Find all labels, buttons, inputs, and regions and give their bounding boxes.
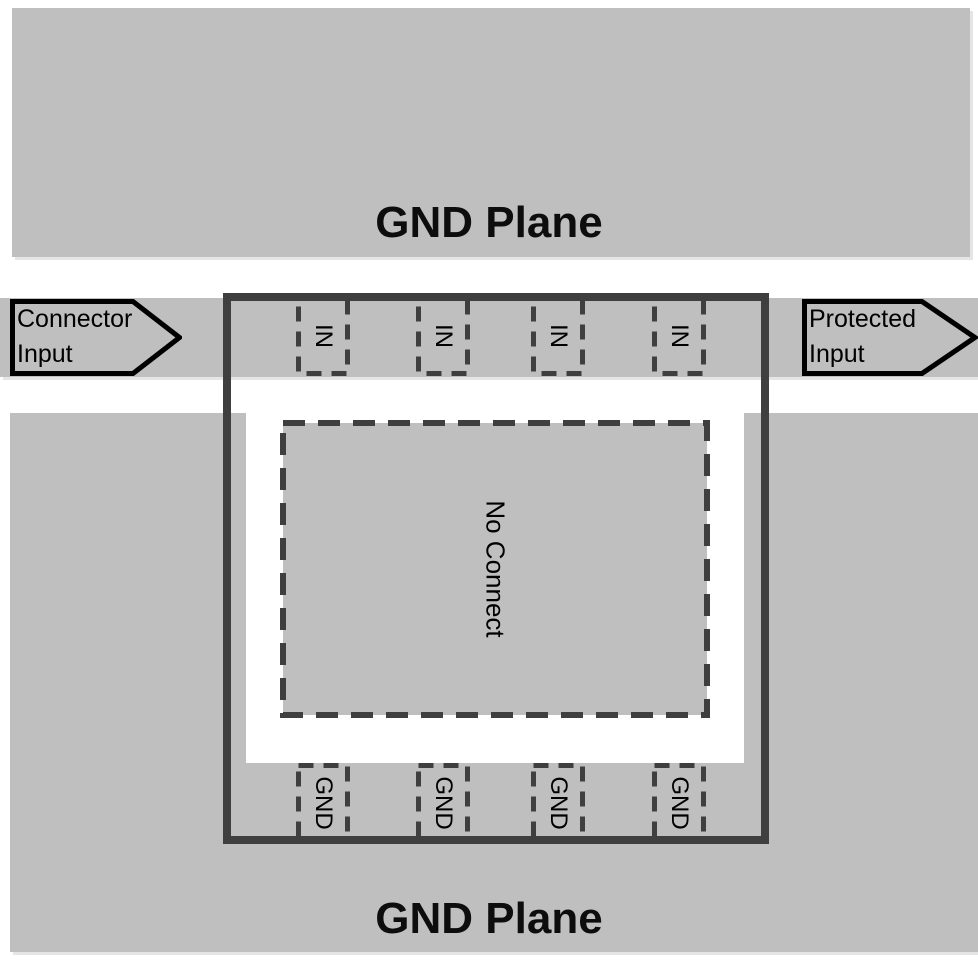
chip-footprint-outline (223, 293, 769, 844)
connector-input-label-line1: Connector (17, 302, 132, 337)
pcb-layout-diagram: GND Plane GND Plane No Connect IN IN IN … (0, 0, 978, 976)
protected-input-label-line2: Input (809, 337, 916, 372)
gnd-plane-top-label: GND Plane (0, 198, 978, 248)
connector-input-arrow: Connector Input (10, 299, 182, 376)
connector-input-label: Connector Input (17, 302, 132, 372)
protected-input-label: Protected Input (809, 302, 916, 372)
gnd-plane-bottom-label: GND Plane (0, 894, 978, 944)
protected-input-arrow: Protected Input (802, 299, 978, 376)
connector-input-label-line2: Input (17, 337, 132, 372)
protected-input-label-line1: Protected (809, 302, 916, 337)
